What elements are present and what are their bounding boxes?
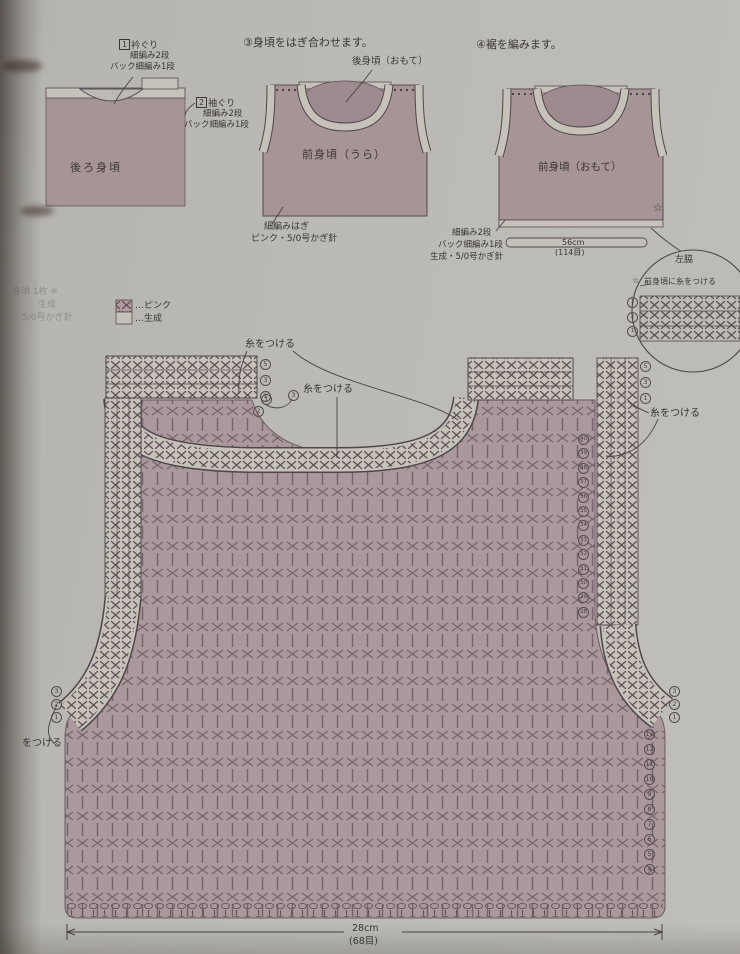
row-number: 3: [51, 686, 62, 697]
armhole-callout-title: 2袖ぐり: [196, 97, 235, 109]
right-shoulder-row-numbers: 531: [640, 361, 651, 404]
step-number-box: 1: [119, 39, 130, 50]
side-detail-title: 左脇: [675, 255, 693, 265]
join-callout-line2: ピンク・5/0号かぎ針: [251, 234, 337, 244]
left-shoulder-row-numbers: 531: [260, 359, 271, 402]
join-front-label: 前身頃（うら）: [302, 149, 386, 162]
neckline-callout-title: 1衿ぐり: [119, 39, 158, 51]
row-number: 3: [640, 377, 651, 388]
row-number: 38: [578, 463, 589, 474]
row-number: 1: [51, 712, 62, 723]
row-number: 2: [627, 312, 638, 323]
legend-pink-label: …ピンク: [135, 301, 171, 311]
row-number: 1: [627, 326, 638, 337]
armhole-callout-line1: 細編み2段: [203, 110, 242, 120]
back-body-diagram: [46, 77, 195, 206]
right-armhole-row-numbers: 321: [669, 686, 680, 723]
row-number: 32: [578, 549, 589, 560]
step-number-box: 2: [196, 97, 207, 108]
hem-callout-line3: 生成・5/0号かぎ針: [430, 253, 503, 263]
right-lower-row-numbers: 13121110987654: [644, 729, 655, 875]
attach-yarn-note-left: をつける: [22, 738, 62, 750]
row-number: 6: [644, 834, 655, 845]
row-number: 10: [644, 774, 655, 785]
join-diagram: [263, 70, 427, 224]
legend-faded-line3: 5/0号かぎ針: [22, 313, 73, 323]
row-number: 2: [51, 699, 62, 710]
legend-ecru-label: …生成: [135, 314, 162, 324]
legend-faded-line2: 生成: [38, 300, 56, 310]
page-edge-smudge: [20, 206, 54, 216]
side-detail-row-numbers: 321: [627, 297, 638, 337]
right-upper-row-numbers: 40393837363534333231302928: [578, 434, 589, 618]
row-number: 1: [260, 391, 271, 402]
join-callout-line1: 細編みはぎ: [264, 222, 309, 232]
row-number: 28: [578, 607, 589, 618]
hem-step-title: ④裾を編みます。: [476, 39, 562, 52]
chart-stitch-count: (68目): [349, 937, 378, 948]
chart-width-label: 28cm: [352, 924, 379, 935]
star-marker: ☆: [653, 202, 663, 215]
side-detail-star: ☆: [632, 276, 639, 285]
neckline-callout-line1: 細編み2段: [130, 52, 169, 62]
neckline-callout-line2: バック細編み1段: [110, 63, 175, 73]
row-number: 3: [627, 297, 638, 308]
stitch-chart: [48, 351, 665, 940]
armhole-callout-line2: バック細編み1段: [184, 121, 249, 131]
row-number: 30: [578, 578, 589, 589]
back-body-label: 後ろ身頃: [70, 162, 122, 175]
hem-width-label: 56cm: [562, 238, 584, 247]
row-number: 3: [669, 686, 680, 697]
hem-front-label: 前身頃（おもて）: [538, 161, 622, 173]
hem-callout-line2: バック細編み1段: [438, 241, 503, 251]
hem-stitch-count: (114目): [555, 248, 585, 257]
row-number: 7: [644, 819, 655, 830]
row-number: 9: [644, 789, 655, 800]
row-number: 12: [644, 744, 655, 755]
row-number: 3: [260, 375, 271, 386]
join-back-label: 後身頃（おもて）: [352, 57, 428, 68]
row-number: 11: [644, 759, 655, 770]
row-number: 35: [578, 506, 589, 517]
row-number: 8: [644, 804, 655, 815]
row-number: 5: [644, 849, 655, 860]
row-number: 5: [260, 359, 271, 370]
binding-shadow: [0, 0, 42, 954]
legend-swatches: [116, 300, 132, 324]
hem-callout-line1: 細編み2段: [452, 229, 491, 239]
row-number: 34: [578, 520, 589, 531]
row-number: 37: [578, 477, 589, 488]
attach-yarn-note-top: 糸をつける: [245, 339, 295, 351]
row-number: 39: [578, 448, 589, 459]
join-step-title: ③身頃をはぎ合わせます。: [243, 37, 373, 50]
row-number: 31: [578, 564, 589, 575]
left-armhole-row-numbers: 321: [51, 686, 62, 723]
row-number: 1: [640, 393, 651, 404]
side-detail-circle: [632, 250, 740, 372]
row-number: 5: [640, 361, 651, 372]
neck-row-number: 2: [253, 406, 264, 417]
row-number: 1: [669, 712, 680, 723]
legend-faded-line1: 身頃 1枚 ※: [12, 287, 58, 297]
attach-yarn-note-right: 糸をつける: [650, 408, 700, 420]
page-edge-smudge: [2, 60, 42, 72]
row-number: 29: [578, 592, 589, 603]
row-number: 4: [644, 864, 655, 875]
attach-yarn-note-neck: 糸をつける: [303, 384, 353, 396]
pattern-drawings: [0, 0, 740, 954]
row-number: 40: [578, 434, 589, 445]
neck-row-number: 3: [288, 390, 299, 401]
row-number: 13: [644, 729, 655, 740]
scanned-pattern-page: 後ろ身頃 1衿ぐり 細編み2段 バック細編み1段 2袖ぐり 細編み2段 バック細…: [0, 0, 740, 954]
armhole-callout-text: 袖ぐり: [208, 99, 235, 109]
row-number: 36: [578, 492, 589, 503]
neckline-callout-text: 衿ぐり: [131, 41, 158, 51]
row-number: 2: [669, 699, 680, 710]
row-number: 33: [578, 535, 589, 546]
side-detail-note: 前身頃に糸をつける: [644, 277, 716, 286]
